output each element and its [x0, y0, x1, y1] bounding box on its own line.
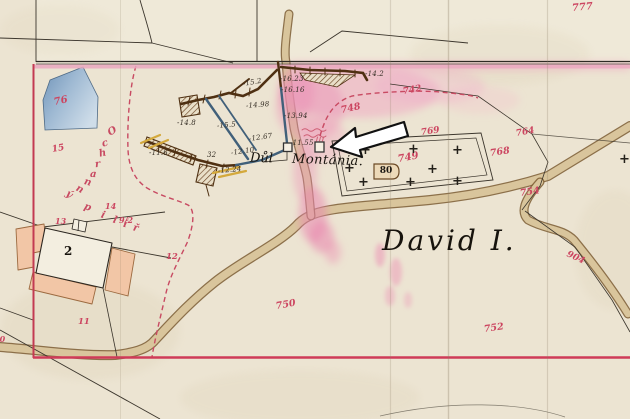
white-arrow-annotation: [331, 122, 408, 157]
map-canvas: -15.2-16.23-16.16-14.2-14.98-13.94-14.8-…: [0, 0, 630, 419]
annotation-arrow-layer: [0, 0, 630, 419]
